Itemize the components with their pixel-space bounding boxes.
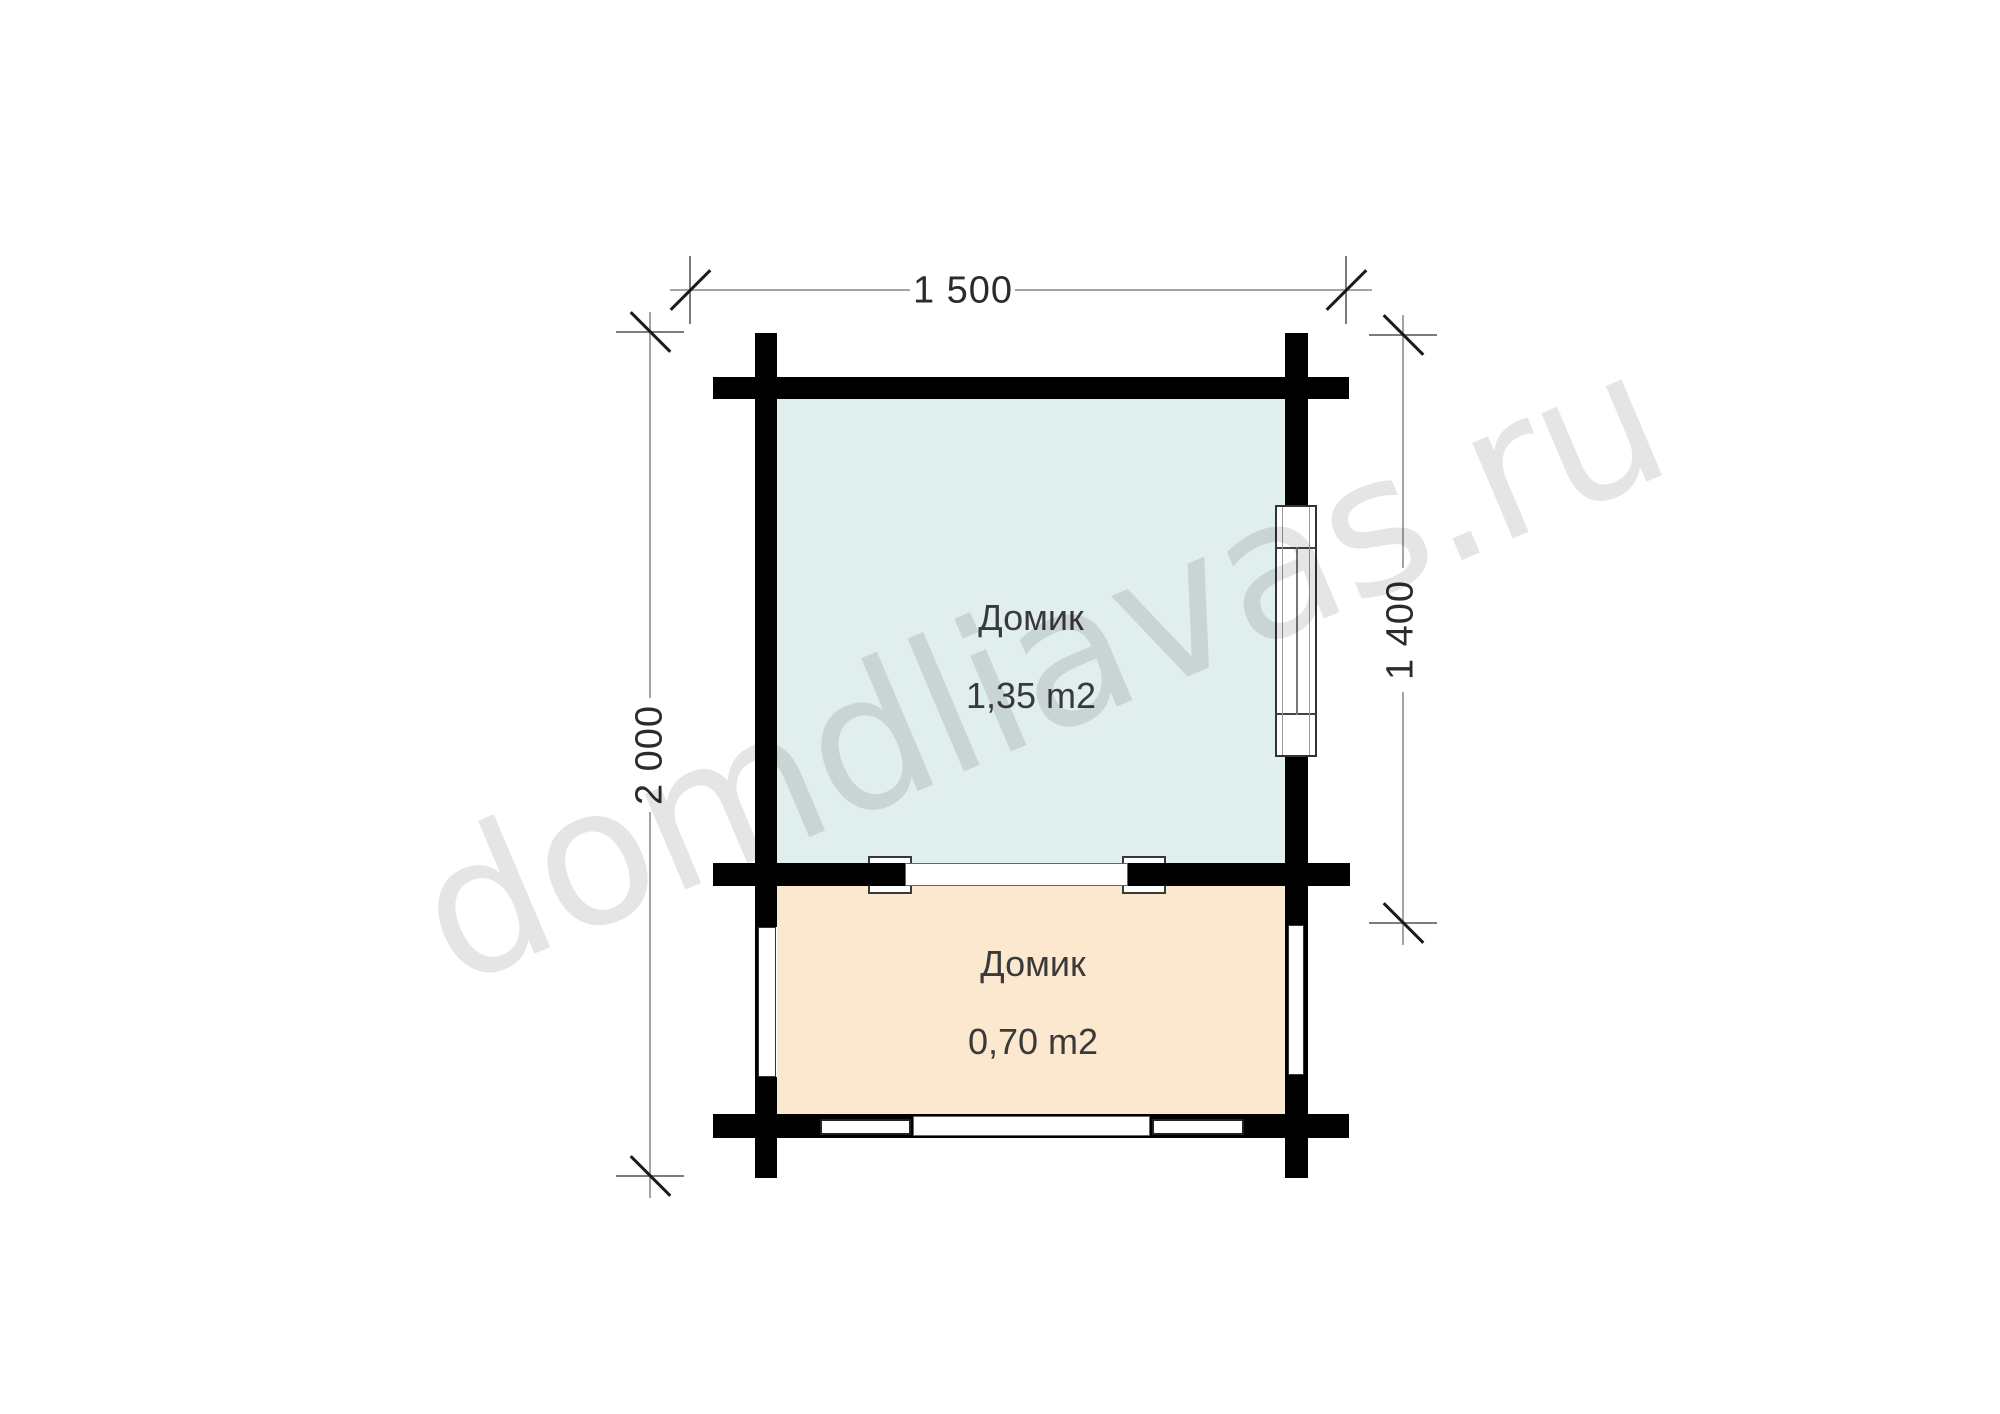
wall-top — [713, 377, 1349, 399]
dimension-label-room-depth: 1 400 — [1380, 580, 1423, 680]
wall-right-middle — [1285, 757, 1308, 925]
window-left-lower — [758, 927, 776, 1077]
dimension-line-top-right-segment — [1015, 289, 1372, 291]
wall-right-upper — [1285, 333, 1308, 505]
window-right-lower — [1288, 925, 1304, 1075]
room-lower-name: Домик — [980, 943, 1085, 985]
room-lower-fill — [777, 886, 1285, 1114]
window-right-upper — [1275, 505, 1317, 757]
bottom-wall-window-right — [1152, 1119, 1244, 1135]
bottom-wall-door-opening — [913, 1116, 1150, 1136]
wall-left-lower — [755, 1077, 777, 1178]
window-frame-line — [1282, 507, 1283, 755]
wall-middle-left-segment — [713, 863, 905, 886]
bottom-wall-window-left — [820, 1119, 911, 1135]
room-lower-area: 0,70 m2 — [968, 1021, 1098, 1063]
floorplan-canvas: 1 500 2 000 1 400 Домик 1,35 m2 Домик 0,… — [0, 0, 2000, 1414]
wall-left-upper — [755, 333, 777, 927]
dimension-line-right-lower-segment — [1402, 692, 1404, 945]
room-upper-name: Домик — [978, 597, 1083, 639]
dimension-label-width: 1 500 — [913, 270, 1013, 313]
wall-right-window-strip-outer — [1304, 925, 1308, 1075]
wall-middle-right-segment — [1128, 863, 1350, 886]
dimension-line-top-left-segment — [670, 289, 910, 291]
dimension-line-right-upper-segment — [1402, 315, 1404, 568]
door-opening-between-rooms — [905, 863, 1128, 886]
wall-right-lower — [1285, 1075, 1308, 1178]
dimension-line-left-upper-segment — [649, 312, 651, 698]
dimension-label-total-depth: 2 000 — [629, 705, 672, 805]
room-upper-area: 1,35 m2 — [966, 675, 1096, 717]
window-frame-line — [1309, 507, 1310, 755]
window-center-line — [1296, 547, 1298, 715]
dimension-line-left-lower-segment — [649, 812, 651, 1198]
